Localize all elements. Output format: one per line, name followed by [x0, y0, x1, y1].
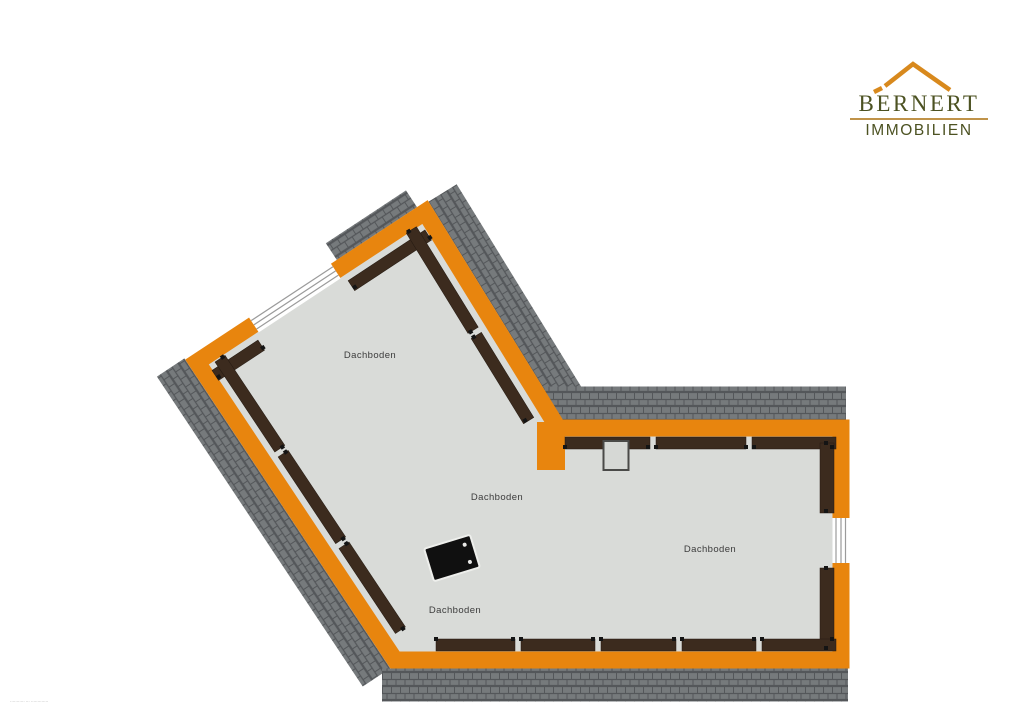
room-label: Dachboden — [471, 492, 523, 503]
room-label: Dachboden — [344, 350, 396, 361]
beam — [601, 639, 676, 651]
chimney — [604, 441, 629, 470]
beams-bottom-wall — [436, 639, 836, 651]
beam — [682, 639, 756, 651]
logo: BERNERT IMMOBILIEN — [840, 50, 998, 139]
beam — [820, 443, 834, 513]
roof-tile-band-top — [545, 387, 846, 420]
roof-icon — [844, 50, 994, 94]
logo-subtitle: IMMOBILIEN — [840, 122, 998, 139]
room-label: Dachboden — [429, 605, 481, 616]
beam — [656, 437, 746, 449]
roof-tile-band-bottom — [382, 669, 848, 702]
room-label: Dachboden — [684, 544, 736, 555]
logo-title: BERNERT — [840, 92, 998, 115]
beam — [436, 639, 515, 651]
logo-divider — [850, 118, 988, 120]
window-right-wall — [833, 518, 850, 563]
beam — [521, 639, 595, 651]
fine-print-text: ··········· ··· ············· — [10, 699, 48, 704]
attic-floor-outline — [197, 212, 841, 660]
